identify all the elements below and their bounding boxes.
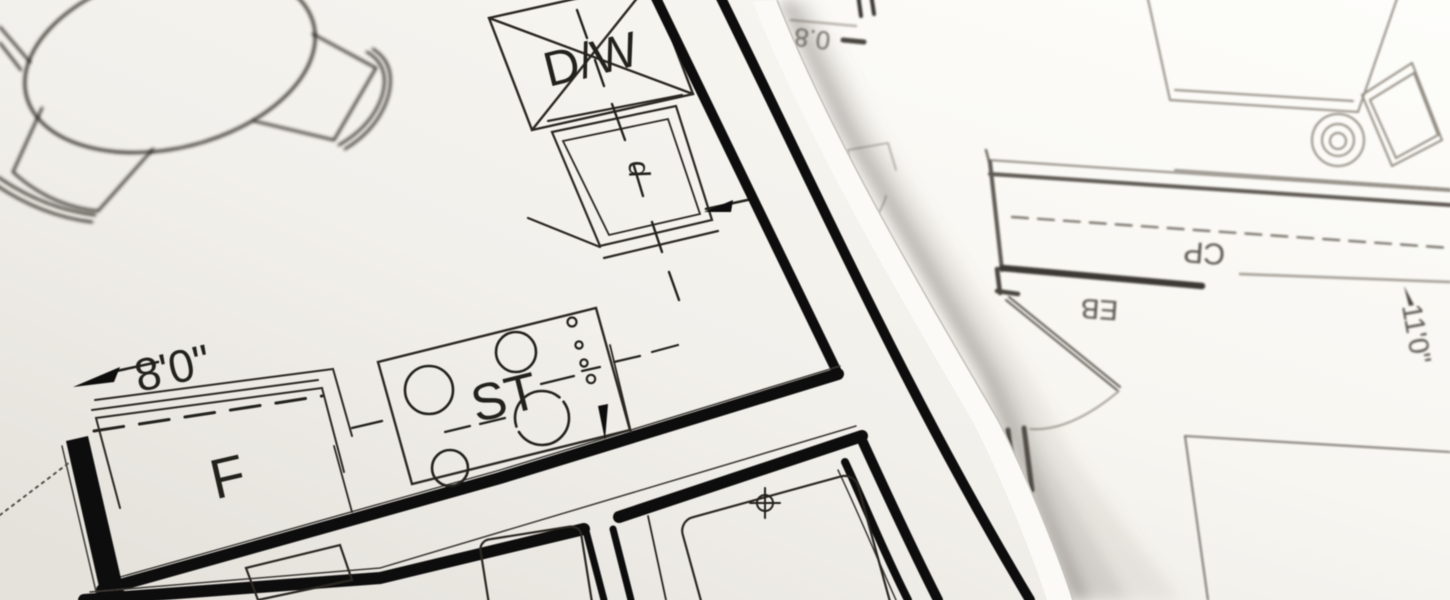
svg-text:EB: EB bbox=[1080, 293, 1119, 327]
svg-text:CP: CP bbox=[1182, 235, 1226, 271]
svg-text:d: d bbox=[622, 160, 656, 178]
